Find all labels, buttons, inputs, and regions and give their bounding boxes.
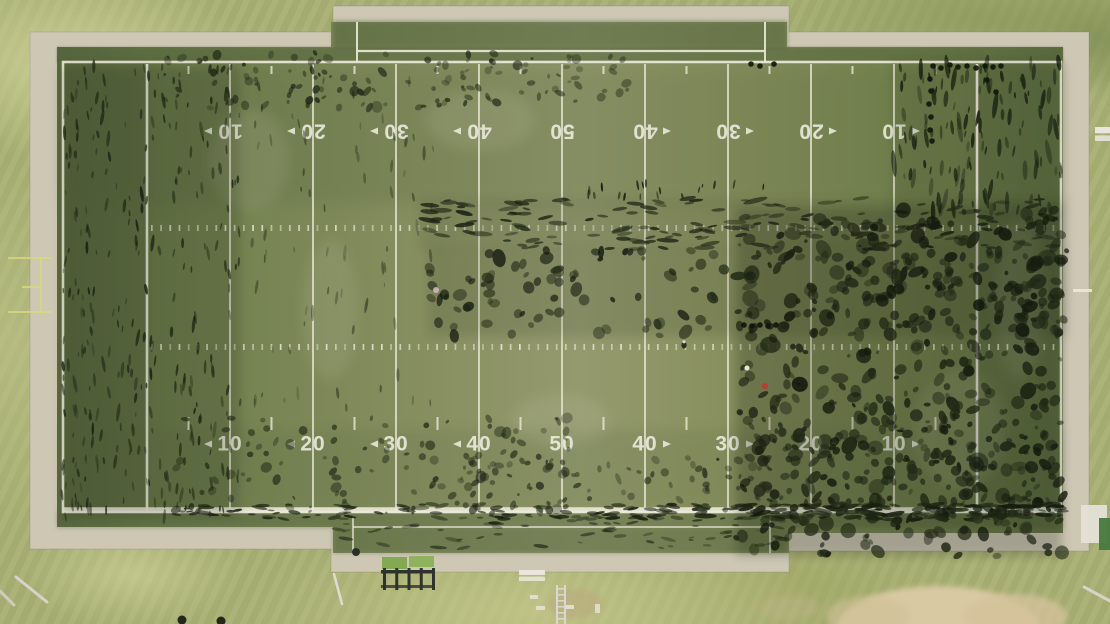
hash-mark [455, 344, 457, 350]
char-dot [757, 63, 763, 69]
hash-mark [326, 225, 328, 231]
hash-mark [657, 344, 659, 350]
char-mark [92, 59, 95, 73]
char-dot [990, 64, 996, 70]
sled-post [408, 568, 411, 590]
hash-mark [648, 344, 650, 350]
hash-mark [409, 225, 411, 231]
white-bench-right [1095, 127, 1110, 141]
five-yard-tick-top [769, 66, 771, 74]
char-mark [210, 354, 212, 363]
char-dot [773, 322, 779, 328]
hash-mark [372, 344, 374, 350]
hash-mark [620, 344, 622, 350]
bench-slat [1095, 127, 1110, 133]
hash-mark [317, 225, 319, 231]
hash-mark [629, 344, 631, 350]
char-mark [523, 199, 537, 202]
hash-mark [491, 344, 493, 350]
char-dot [927, 127, 933, 133]
five-yard-tick-top [271, 66, 273, 74]
hash-mark [445, 344, 447, 350]
hash-mark [537, 344, 539, 350]
five-yard-tick-bottom [603, 417, 605, 430]
char-mark [1029, 56, 1032, 72]
char-mark [73, 96, 75, 103]
hash-mark [731, 344, 733, 350]
turf-shade [57, 47, 1063, 63]
ladder-rung [556, 600, 566, 602]
char-mark [228, 283, 230, 293]
char-dot [741, 322, 747, 328]
white-debris-2 [536, 606, 545, 610]
hash-mark [602, 344, 604, 350]
char-mark [74, 150, 77, 159]
path-marking-tick [1073, 289, 1092, 292]
yard-number-text: 40 [632, 120, 657, 143]
hash-mark [344, 225, 346, 231]
char-mark [311, 305, 314, 322]
white-bench-bottom [519, 570, 545, 581]
hash-mark [409, 344, 411, 350]
char-mark [254, 394, 257, 405]
char-dot [930, 63, 936, 69]
white-pole-upright [334, 574, 342, 604]
char-dot [928, 114, 934, 120]
green-mat-left [382, 557, 407, 569]
hash-mark [390, 225, 392, 231]
sled-post [420, 568, 423, 590]
turf-shade [333, 528, 787, 553]
hash-mark [243, 344, 245, 350]
blocking-sled [381, 568, 435, 590]
five-yard-tick-top [603, 66, 605, 74]
hash-mark [261, 344, 263, 350]
hash-mark [675, 344, 677, 350]
char-dot [926, 101, 932, 107]
char-dot [955, 64, 961, 70]
turf-shade [333, 21, 787, 48]
char-mark [741, 199, 750, 201]
hash-mark [271, 225, 273, 231]
char-mark [503, 239, 511, 241]
yard-number-top: 50 [549, 120, 574, 143]
hash-mark [363, 225, 365, 231]
char-mark [864, 256, 875, 266]
char-dot [749, 323, 755, 329]
hash-mark [639, 344, 641, 350]
hash-mark [427, 344, 429, 350]
char-mark [566, 519, 577, 522]
five-yard-tick-top [354, 66, 356, 74]
fallen-pole-left-2 [0, 591, 14, 605]
hash-mark [574, 344, 576, 350]
hash-mark [482, 344, 484, 350]
char-dot [984, 77, 990, 83]
hash-mark [363, 344, 365, 350]
white-debris-1 [530, 595, 538, 599]
char-mark [238, 113, 240, 118]
fallen-pole-left [16, 577, 47, 602]
ladder-rung [556, 594, 566, 596]
hash-mark [436, 344, 438, 350]
hash-mark [307, 344, 309, 350]
hash-mark [307, 225, 309, 231]
char-mark [925, 420, 930, 423]
char-mark [547, 74, 550, 79]
char-mark [882, 518, 897, 521]
hash-mark [611, 344, 613, 350]
aerial-football-field-photo: 101020203030404050504040303020201010 [0, 0, 1110, 624]
char-dot [757, 322, 763, 328]
five-yard-tick-bottom [354, 417, 356, 430]
hash-mark [344, 344, 346, 350]
char-dot [928, 88, 934, 94]
char-dot [982, 63, 988, 69]
white-debris-4 [595, 604, 600, 613]
hash-mark [418, 344, 420, 350]
char-mark [304, 321, 306, 326]
hash-mark [280, 225, 282, 231]
sled-post [432, 568, 435, 590]
hash-mark [335, 344, 337, 350]
char-mark [181, 238, 184, 249]
white-debris-3 [566, 605, 574, 609]
hash-mark [372, 225, 374, 231]
char-mark [146, 383, 148, 389]
five-yard-tick-top [686, 66, 688, 74]
yard-number-text: 20 [300, 433, 325, 456]
char-dot [765, 323, 771, 329]
char-dot [993, 89, 999, 95]
ladder-rung [556, 618, 566, 620]
sand-patch [547, 589, 603, 619]
hash-mark [243, 225, 245, 231]
char-mark [919, 58, 923, 79]
right-endzone-top-base [892, 62, 1062, 214]
char-mark [106, 102, 108, 109]
hash-mark [289, 225, 291, 231]
char-mark [547, 236, 558, 239]
hash-mark [547, 344, 549, 350]
char-mark [191, 266, 193, 273]
green-mat-right [409, 556, 434, 567]
char-mark [944, 383, 951, 390]
char-dot [771, 61, 777, 67]
ladder-rung [556, 612, 566, 614]
char-mark [105, 505, 107, 515]
five-yard-tick-bottom [437, 417, 439, 430]
hash-mark [519, 344, 521, 350]
yard-number-text: 50 [549, 120, 574, 143]
worn-turf-patch [302, 240, 358, 380]
ladder-rung [556, 588, 566, 590]
hash-mark [593, 344, 595, 350]
yard-number-text: 40 [466, 120, 491, 143]
yard-number-text: 30 [383, 120, 408, 143]
hash-mark [703, 344, 705, 350]
char-mark [645, 179, 647, 188]
five-yard-tick-bottom [520, 417, 522, 430]
white-item [745, 366, 750, 371]
char-dot [964, 63, 970, 69]
outer-grass-features [547, 586, 1067, 624]
sand-patch [760, 596, 820, 620]
hash-mark [280, 344, 282, 350]
five-yard-tick-bottom [271, 417, 273, 430]
char-dot [929, 138, 935, 144]
hash-mark [464, 344, 466, 350]
char-mark [284, 397, 286, 403]
hash-mark [721, 344, 723, 350]
hash-mark [317, 344, 319, 350]
yard-number-text: 30 [715, 120, 740, 143]
char-mark [71, 498, 73, 506]
hash-mark [381, 225, 383, 231]
yard-number-text: 50 [549, 433, 574, 456]
char-mark [1005, 192, 1009, 214]
char-mark [159, 458, 162, 470]
hash-mark [353, 225, 355, 231]
yard-number-text: 40 [632, 433, 657, 456]
hash-mark [399, 344, 401, 350]
hash-mark [381, 344, 383, 350]
hash-mark [666, 344, 668, 350]
hash-mark [528, 344, 530, 350]
bench-slat [519, 577, 545, 581]
five-yard-tick-bottom [686, 417, 688, 430]
aerial-photo: 101020203030404050504040303020201010 [0, 0, 1110, 624]
five-yard-tick-top [852, 66, 854, 74]
hash-mark [261, 225, 263, 231]
char-mark [226, 411, 228, 416]
fallen-pole-right [1084, 587, 1110, 601]
yard-number-bottom: 50 [549, 433, 574, 456]
hash-mark [298, 344, 300, 350]
char-dot [938, 65, 944, 71]
hash-mark [694, 344, 696, 350]
equipment-shed-green [1099, 518, 1110, 550]
char-mark [161, 487, 163, 499]
bench-slat [1095, 135, 1110, 141]
sled-post [395, 568, 398, 590]
sled-post [383, 568, 386, 590]
hash-mark [473, 344, 475, 350]
hash-mark [565, 344, 567, 350]
char-mark [173, 77, 175, 85]
hash-mark [298, 225, 300, 231]
path-debris-dark [352, 548, 360, 556]
bench-slat [519, 570, 545, 575]
char-dot [927, 76, 933, 82]
red-item [762, 383, 768, 389]
pink-marker [433, 287, 439, 293]
char-dot [947, 62, 953, 68]
hash-mark [712, 344, 714, 350]
hash-mark [252, 344, 254, 350]
hash-mark [390, 344, 392, 350]
yard-number-text: 20 [798, 120, 823, 143]
tire-1 [178, 616, 187, 624]
char-dot [973, 65, 979, 71]
person-head [682, 340, 685, 343]
hash-mark [326, 344, 328, 350]
hash-mark [353, 344, 355, 350]
hash-mark [501, 344, 503, 350]
hash-mark [556, 344, 558, 350]
hash-mark [399, 225, 401, 231]
hash-mark [583, 344, 585, 350]
hash-mark [252, 225, 254, 231]
char-dot [748, 61, 754, 67]
char-dot [998, 63, 1004, 69]
char-mark [949, 68, 951, 74]
char-mark [63, 268, 65, 273]
tire-2 [217, 617, 226, 624]
hash-mark [510, 344, 512, 350]
ladder-rung [556, 606, 566, 608]
hash-mark [335, 225, 337, 231]
